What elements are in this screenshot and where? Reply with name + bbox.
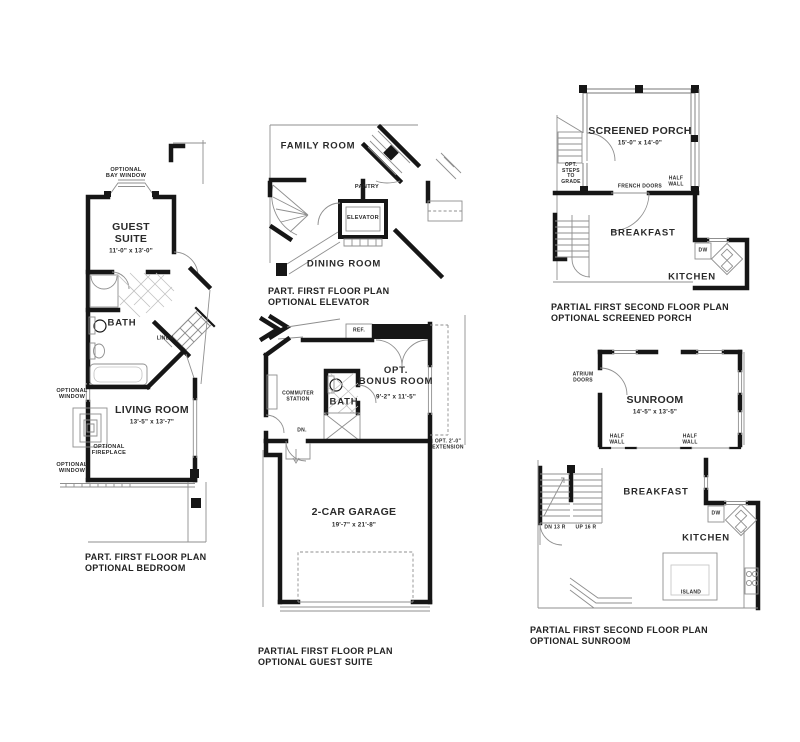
dimension-garage: 19'-7" x 21'-8" [332, 521, 376, 528]
dimension-bonus-room: 9'-2" x 11'-5" [376, 393, 416, 400]
label-pantry: PANTRY [355, 184, 379, 190]
floorplan-drawing-optional-screened-porch [545, 75, 767, 335]
label-optional-window-upper: OPTIONAL WINDOW [56, 388, 87, 400]
label-optional-fireplace: OPTIONAL FIREPLACE [92, 444, 126, 456]
room-label-bath: BATH [108, 319, 137, 330]
plan-optional-screened-porch: SCREENED PORCH 15'-0" x 14'-0" OPT. STEP… [545, 75, 767, 335]
room-label-family-room: FAMILY ROOM [281, 142, 356, 153]
label-dw: DW [699, 248, 708, 254]
room-label-kitchen: KITCHEN [668, 273, 716, 284]
room-label-bonus-room: OPT. BONUS ROOM [359, 366, 434, 388]
label-half-wall: HALF WALL [668, 177, 683, 188]
room-label-kitchen-sunroom: KITCHEN [682, 534, 730, 545]
plan-caption-optional-sunroom: PARTIAL FIRST SECOND FLOOR PLAN OPTIONAL… [530, 625, 708, 647]
plan-optional-bedroom: OPTIONAL BAY WINDOW GUEST SUITE 11'-0" x… [60, 140, 235, 590]
label-dw-sunroom: DW [712, 511, 721, 517]
label-opt-steps-to-grade: OPT. STEPS TO GRADE [561, 163, 581, 185]
label-elevator: ELEVATOR [347, 215, 379, 221]
label-ref: REF. [353, 328, 365, 334]
room-label-garage: 2-CAR GARAGE [312, 506, 397, 518]
dimension-sunroom: 14'-5" x 13'-5" [633, 408, 677, 415]
plan-caption-optional-guest-suite: PARTIAL FIRST FLOOR PLAN OPTIONAL GUEST … [258, 646, 393, 668]
room-label-breakfast-sunroom: BREAKFAST [623, 488, 688, 499]
label-half-wall-left: HALF WALL [609, 435, 624, 446]
floorplan-sheet: OPTIONAL BAY WINDOW GUEST SUITE 11'-0" x… [0, 0, 800, 742]
floorplan-drawing-optional-bedroom [60, 140, 235, 590]
label-opt-extension: OPT. 2'-0" EXTENSION [432, 440, 464, 451]
plan-optional-elevator: FAMILY ROOM PANTRY ELEVATOR DINING ROOM … [268, 123, 463, 313]
label-island: ISLAND [681, 590, 701, 596]
room-label-sunroom: SUNROOM [627, 394, 684, 406]
label-dn: DN. [297, 428, 307, 434]
plan-optional-guest-suite: REF. OPT. BONUS ROOM 9'-2" x 11'-5" COMM… [258, 315, 473, 675]
dimension-living-room: 13'-5" x 13'-7" [130, 418, 174, 425]
label-atrium-doors: ATRIUM DOORS [573, 373, 594, 384]
room-label-breakfast: BREAKFAST [610, 229, 675, 240]
label-french-doors: FRENCH DOORS [618, 184, 662, 190]
dimension-screened-porch: 15'-0" x 14'-0" [618, 139, 662, 146]
plan-caption-optional-elevator: PART. FIRST FLOOR PLAN OPTIONAL ELEVATOR [268, 286, 389, 308]
label-up-16r: UP 16 R [576, 525, 597, 531]
label-dn-13r: DN 13 R [544, 525, 565, 531]
plan-optional-sunroom: ATRIUM DOORS SUNROOM 14'-5" x 13'-5" HAL… [528, 340, 773, 650]
label-half-wall-right: HALF WALL [682, 435, 697, 446]
room-label-dining-room: DINING ROOM [307, 260, 381, 271]
label-commuter-station: COMMUTER STATION [282, 392, 314, 403]
dimension-guest-suite: 11'-0" x 13'-0" [109, 247, 153, 254]
room-label-bath: BATH [330, 398, 359, 409]
room-label-living-room: LIVING ROOM [115, 404, 189, 416]
room-label-screened-porch: SCREENED PORCH [588, 125, 691, 137]
room-label-guest-suite: GUEST SUITE [112, 221, 150, 245]
plan-caption-optional-bedroom: PART. FIRST FLOOR PLAN OPTIONAL BEDROOM [85, 552, 206, 574]
label-linen: LINEN [157, 336, 174, 342]
label-optional-window-lower: OPTIONAL WINDOW [56, 462, 87, 474]
label-optional-bay-window: OPTIONAL BAY WINDOW [106, 167, 146, 179]
plan-caption-optional-screened-porch: PARTIAL FIRST SECOND FLOOR PLAN OPTIONAL… [551, 302, 729, 324]
